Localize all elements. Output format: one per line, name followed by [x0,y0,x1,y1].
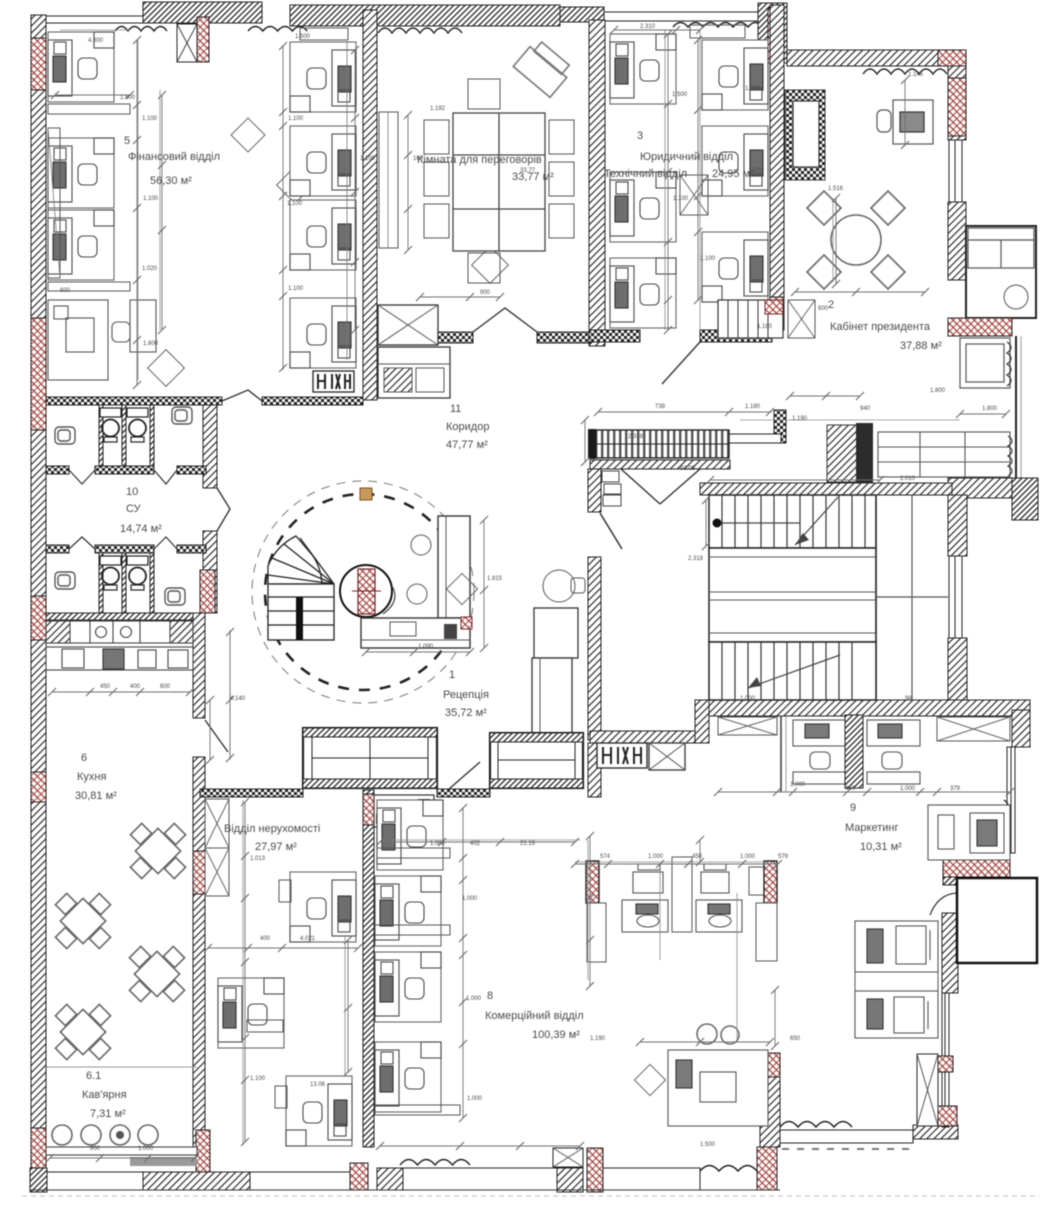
svg-text:Відділ нерухомості: Відділ нерухомості [224,823,320,835]
svg-text:1.100: 1.100 [673,196,689,202]
svg-text:1.500: 1.500 [700,1142,716,1148]
svg-text:1.100: 1.100 [287,201,303,207]
svg-text:6: 6 [81,752,87,764]
svg-text:Комерційний відділ: Комерційний відділ [485,1010,584,1022]
svg-text:1.000: 1.000 [745,86,761,92]
svg-text:1.500: 1.500 [672,92,688,98]
svg-text:Кав'ярня: Кав'ярня [82,1089,127,1101]
svg-text:450: 450 [845,786,856,792]
svg-text:4.800: 4.800 [88,38,104,44]
svg-text:1.516: 1.516 [828,186,844,192]
svg-text:1.800: 1.800 [982,406,998,412]
svg-text:Кабінет президента: Кабінет президента [830,321,931,333]
svg-text:1.146: 1.146 [908,72,924,78]
svg-text:1.500: 1.500 [295,34,311,40]
svg-text:7,31 м²: 7,31 м² [90,1108,126,1120]
svg-text:1.800: 1.800 [143,341,159,347]
svg-text:1.000: 1.000 [466,996,482,1002]
svg-text:940: 940 [860,406,871,412]
svg-text:1.180: 1.180 [745,404,761,410]
svg-text:1.100: 1.100 [143,196,159,202]
svg-text:1.000: 1.000 [740,696,756,702]
svg-text:35,72 м²: 35,72 м² [445,707,487,719]
svg-text:1.000: 1.000 [138,1146,154,1152]
svg-text:1.090: 1.090 [418,644,434,650]
svg-text:400: 400 [260,936,271,942]
svg-text:900: 900 [480,290,491,296]
svg-text:450: 450 [692,854,703,860]
svg-text:1.000: 1.000 [900,786,916,792]
svg-text:402: 402 [470,841,481,847]
svg-text:47,77 м²: 47,77 м² [446,439,488,451]
svg-text:160: 160 [413,156,424,162]
svg-text:60.09: 60.09 [680,466,696,472]
svg-text:1.100: 1.100 [700,256,716,262]
svg-text:379: 379 [950,786,961,792]
svg-text:Технічний відділ: Технічний відділ [604,168,687,180]
svg-text:1.100: 1.100 [360,156,376,162]
svg-text:650: 650 [790,1036,801,1042]
svg-text:1.800: 1.800 [930,388,946,394]
svg-text:Фінансовий відділ: Фінансовий відділ [128,151,220,163]
svg-text:Рецепція: Рецепція [443,689,489,701]
svg-text:1.190: 1.190 [792,416,808,422]
svg-text:1.100: 1.100 [288,116,304,122]
svg-text:600: 600 [818,306,829,312]
svg-text:8: 8 [487,990,493,1002]
svg-text:1.100: 1.100 [288,286,304,292]
svg-text:574: 574 [600,854,611,860]
svg-text:2.318: 2.318 [628,434,644,440]
svg-text:10,31 м²: 10,31 м² [860,841,902,853]
svg-text:3: 3 [637,130,643,142]
svg-text:Маркетинг: Маркетинг [845,822,898,834]
svg-text:21.16: 21.16 [520,841,536,847]
svg-text:1.013: 1.013 [250,856,266,862]
svg-text:1.000: 1.000 [740,854,756,860]
svg-text:1.000: 1.000 [430,841,446,847]
svg-text:1.190: 1.190 [590,1036,606,1042]
svg-text:2.010: 2.010 [900,476,916,482]
svg-text:1.815: 1.815 [487,576,503,582]
svg-text:37,88 м²: 37,88 м² [900,340,942,352]
svg-text:1.192: 1.192 [430,106,446,112]
svg-text:Кухня: Кухня [77,771,106,783]
svg-text:600: 600 [60,288,71,294]
svg-text:1.000: 1.000 [467,1096,483,1102]
svg-text:30,81 м²: 30,81 м² [75,790,117,802]
svg-text:9: 9 [850,802,856,814]
svg-text:11: 11 [450,403,461,415]
svg-text:450: 450 [100,684,111,690]
svg-text:6.1: 6.1 [86,1070,101,1082]
svg-text:1.180: 1.180 [757,324,773,330]
svg-text:98: 98 [905,696,912,702]
svg-text:27,97 м²: 27,97 м² [255,841,297,853]
svg-text:2.310: 2.310 [640,24,656,30]
svg-text:4.021: 4.021 [300,936,316,942]
svg-text:14,74 м²: 14,74 м² [120,523,162,535]
svg-text:10: 10 [126,486,138,498]
svg-text:СУ: СУ [126,503,142,515]
svg-text:579: 579 [778,854,789,860]
svg-text:4.140: 4.140 [230,696,246,702]
svg-text:56,30 м²: 56,30 м² [150,175,192,187]
svg-text:33,77: 33,77 [520,168,536,174]
svg-text:1.100: 1.100 [142,116,158,122]
svg-text:2: 2 [828,299,834,311]
svg-text:13.06: 13.06 [310,1082,326,1088]
svg-text:1.100: 1.100 [250,1076,266,1082]
svg-text:100,39 м²: 100,39 м² [532,1029,580,1041]
svg-text:738: 738 [655,404,666,410]
svg-text:Кімната для переговорів: Кімната для переговорів [417,154,542,166]
svg-text:1.000: 1.000 [648,854,664,860]
svg-text:1.000: 1.000 [462,896,478,902]
svg-text:400: 400 [130,684,141,690]
svg-text:600: 600 [160,684,171,690]
svg-text:Юридичний відділ: Юридичний відділ [640,151,733,163]
svg-text:1.022: 1.022 [748,168,764,174]
svg-text:1: 1 [449,669,455,681]
svg-text:1.800: 1.800 [120,95,136,101]
svg-text:2.318: 2.318 [688,556,704,562]
svg-text:Коридор: Коридор [446,421,489,433]
svg-text:5: 5 [124,135,130,147]
svg-text:1.000: 1.000 [790,782,806,788]
svg-text:1.020: 1.020 [142,266,158,272]
svg-text:900: 900 [90,1146,101,1152]
